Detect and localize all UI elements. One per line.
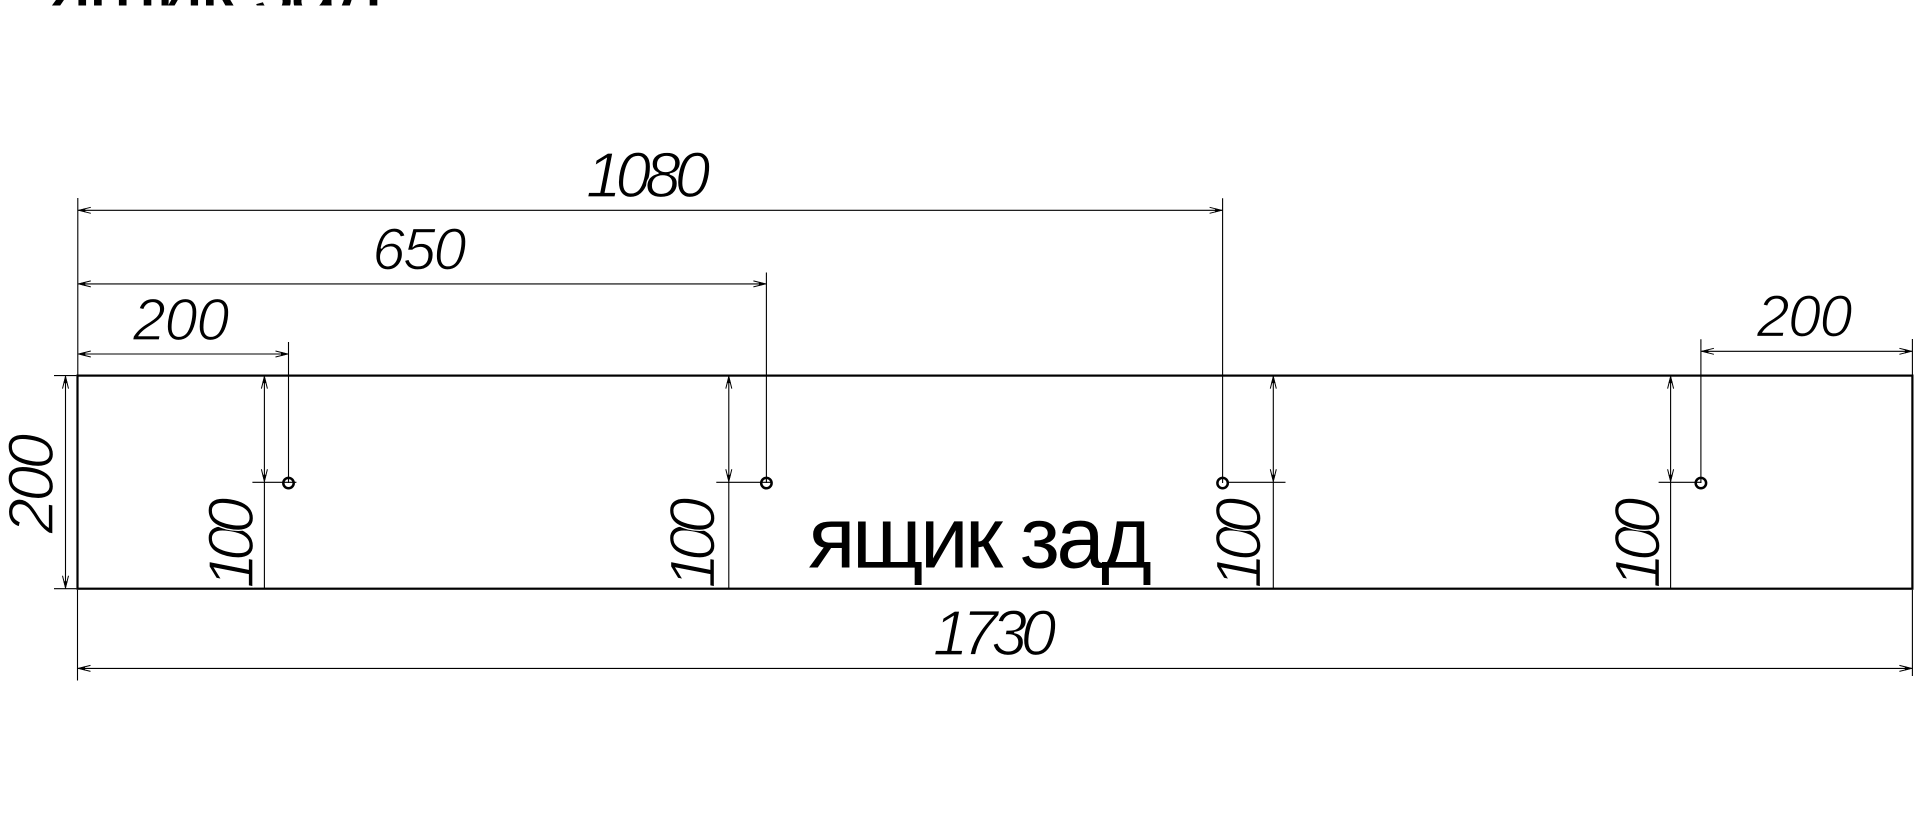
svg-text:1080: 1080 — [586, 139, 711, 211]
svg-text:100: 100 — [195, 497, 267, 588]
svg-text:200: 200 — [132, 287, 230, 353]
svg-text:100: 100 — [1203, 497, 1275, 588]
svg-text:100: 100 — [1601, 497, 1673, 588]
svg-text:650: 650 — [372, 217, 466, 283]
svg-text:ящик зад: ящик зад — [808, 490, 1152, 587]
svg-text:100: 100 — [657, 497, 729, 588]
svg-text:200: 200 — [1756, 283, 1853, 349]
svg-text:1730: 1730 — [933, 597, 1057, 669]
svg-text:200: 200 — [0, 433, 67, 534]
